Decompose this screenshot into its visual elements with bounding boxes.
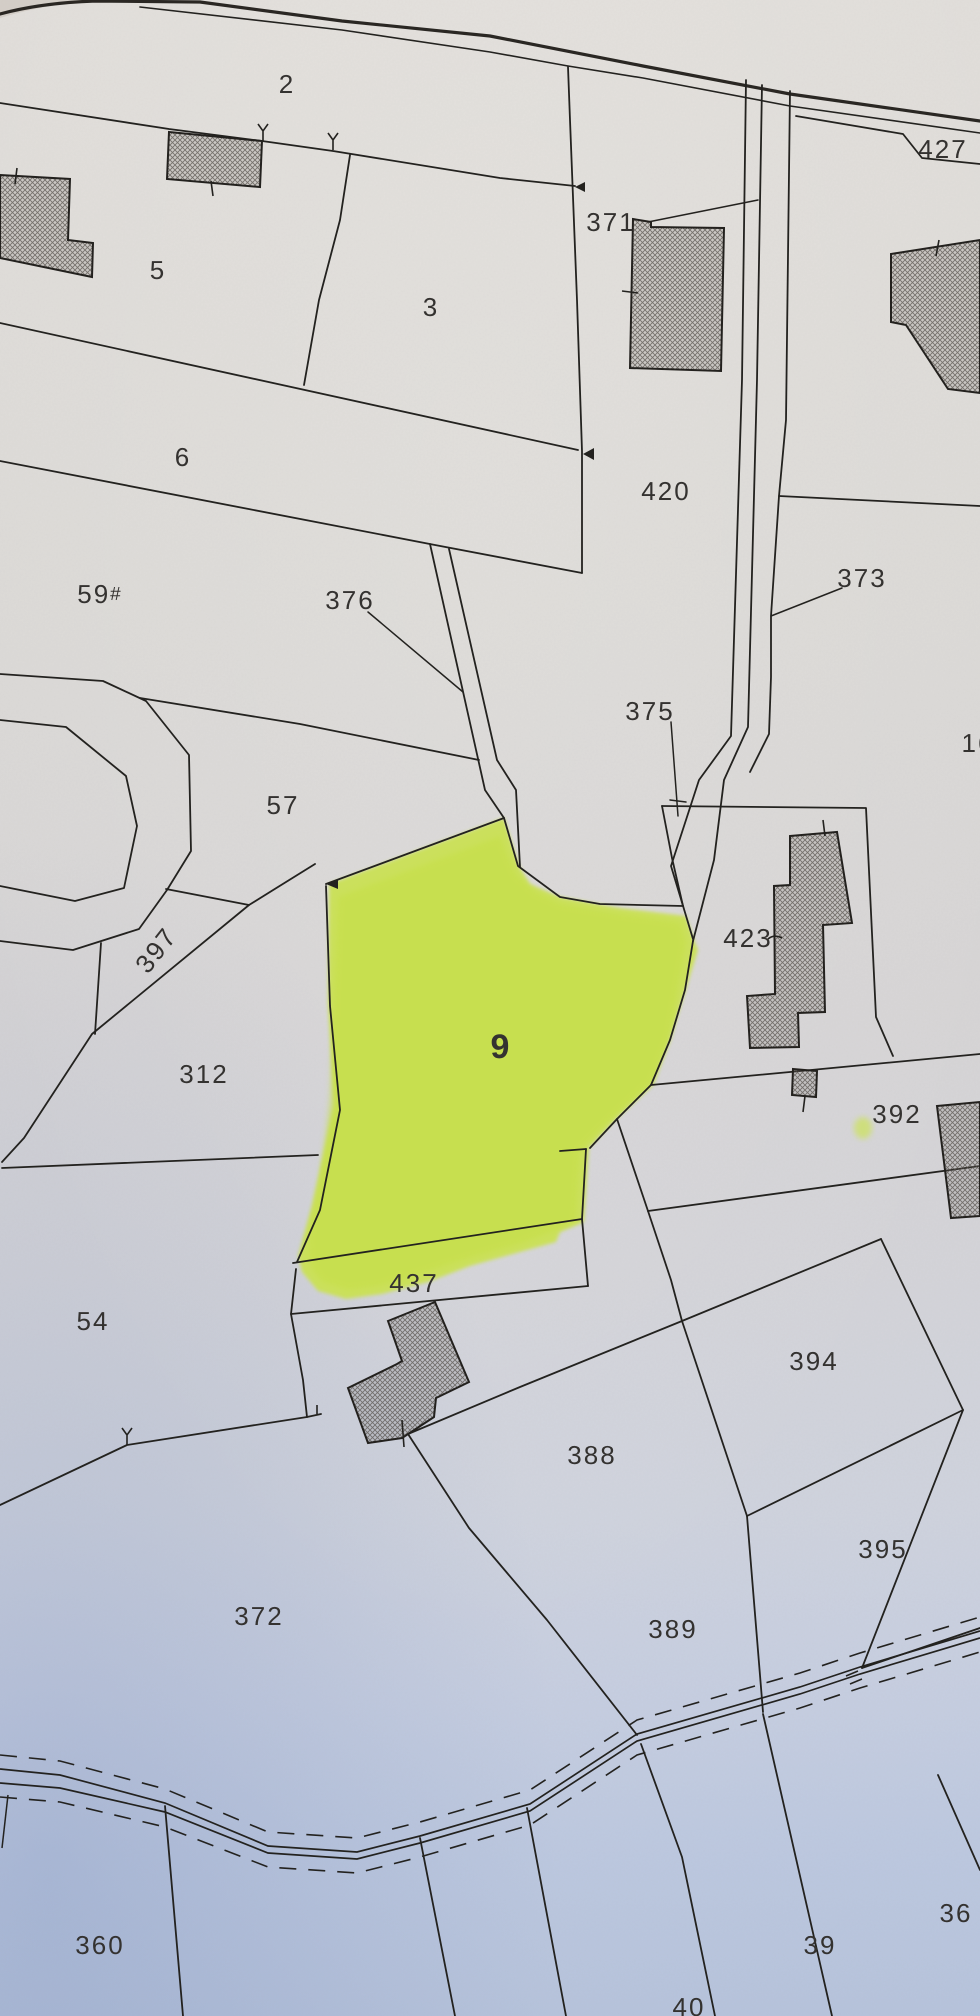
svg-text:312: 312 <box>179 1059 228 1089</box>
svg-text:16: 16 <box>962 728 980 758</box>
svg-text:6: 6 <box>175 442 191 472</box>
svg-text:39: 39 <box>804 1930 837 1960</box>
svg-text:423: 423 <box>723 923 772 953</box>
svg-text:376: 376 <box>325 585 374 615</box>
svg-text:2: 2 <box>279 69 295 99</box>
svg-text:372: 372 <box>234 1601 283 1631</box>
svg-text:395: 395 <box>858 1534 907 1564</box>
svg-text:9: 9 <box>491 1028 512 1066</box>
svg-text:5: 5 <box>150 255 166 285</box>
svg-text:57: 57 <box>267 790 300 820</box>
svg-text:392: 392 <box>872 1099 921 1129</box>
svg-text:389: 389 <box>648 1614 697 1644</box>
svg-text:427: 427 <box>918 134 967 164</box>
svg-text:371: 371 <box>586 207 635 237</box>
svg-text:360: 360 <box>75 1930 124 1960</box>
svg-text:420: 420 <box>641 476 690 506</box>
svg-text:40: 40 <box>673 1992 706 2016</box>
svg-text:437: 437 <box>389 1268 438 1298</box>
svg-text:54: 54 <box>77 1306 110 1336</box>
svg-text:36: 36 <box>940 1898 973 1928</box>
svg-text:375: 375 <box>625 696 674 726</box>
svg-text:3: 3 <box>423 292 439 322</box>
svg-text:59#: 59# <box>77 579 123 609</box>
svg-text:388: 388 <box>567 1440 616 1470</box>
svg-text:394: 394 <box>789 1346 838 1376</box>
svg-text:373: 373 <box>837 563 886 593</box>
